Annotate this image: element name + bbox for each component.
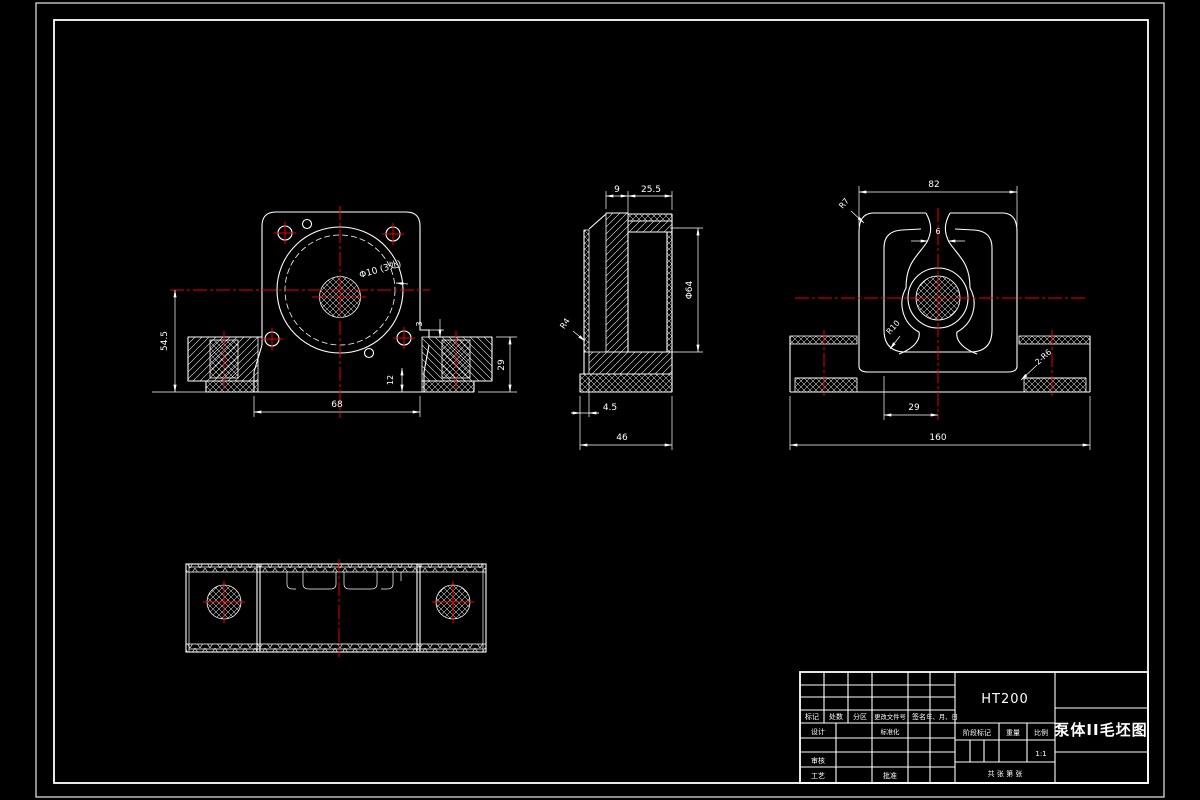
col-count: 处数 xyxy=(829,712,843,721)
drawing-canvas: 54.5 68 29 12 3 Φ10 (3处) 9 25.5 xyxy=(0,0,1200,800)
dim-base-width: 68 xyxy=(331,400,343,410)
col-change-file: 更改文件号 xyxy=(874,712,905,721)
label-standardization: 标准化 xyxy=(881,727,901,736)
dim-slab-height: 12 xyxy=(386,375,395,385)
side-section-view: 9 25.5 Φ64 R4 4.5 46 xyxy=(558,185,703,450)
cad-drawing-sheet: 54.5 68 29 12 3 Φ10 (3处) 9 25.5 xyxy=(0,0,1200,800)
label-approve: 批准 xyxy=(883,771,897,780)
label-check: 审核 xyxy=(811,756,825,765)
label-process: 工艺 xyxy=(811,772,825,780)
material-spec: HT200 xyxy=(981,692,1029,707)
col-mark: 标记 xyxy=(805,712,819,721)
dim-width: 46 xyxy=(616,433,628,443)
dim-leg-offset: 29 xyxy=(908,403,920,413)
dim-step: 3 xyxy=(415,321,424,326)
dim-base-width: 160 xyxy=(929,433,946,443)
dim-step: 4.5 xyxy=(603,403,617,413)
front-view: 54.5 68 29 12 3 Φ10 (3处) xyxy=(152,206,517,418)
dim-flange-thk: 9 xyxy=(614,185,620,195)
dim-center-to-base: 54.5 xyxy=(160,331,170,351)
sheet-info: 共 张 第 张 xyxy=(988,769,1023,778)
dim-body-width: 82 xyxy=(928,180,939,190)
label-design: 设计 xyxy=(811,727,825,736)
rib-contours xyxy=(287,572,401,589)
inner-border xyxy=(54,20,1148,783)
label-scale: 比例 xyxy=(1034,728,1048,737)
dim-slot-width: 6 xyxy=(935,227,940,236)
dim-foot-height: 29 xyxy=(497,359,507,371)
dim-web-fillet: R10 xyxy=(885,318,902,336)
bottom-view xyxy=(186,559,486,657)
dim-fillet: R4 xyxy=(558,317,571,331)
label-stage-mark: 阶段标记 xyxy=(963,728,991,737)
dim-bore-depth: 25.5 xyxy=(641,185,661,195)
dim-holes-callout: Φ10 (3处) xyxy=(358,257,403,280)
col-signature: 签名 xyxy=(912,712,926,721)
dim-bore-dia: Φ64 xyxy=(685,280,695,299)
end-section-view: 82 R7 6 R10 2-R6 29 160 xyxy=(790,180,1090,450)
dim-top-fillet: R7 xyxy=(837,196,851,210)
title-block: 标记 处数 分区 更改文件号 签名 年、月、日 设计 标准化 审核 工艺 批准 … xyxy=(800,672,1148,783)
drawing-title: 泵体II毛坯图 xyxy=(1054,721,1147,739)
col-zone: 分区 xyxy=(853,712,867,721)
label-weight: 重量 xyxy=(1006,729,1020,737)
col-date: 年、月、日 xyxy=(926,712,957,721)
scale-value: 1:1 xyxy=(1035,750,1046,758)
dim-pad-fillet: 2-R6 xyxy=(1033,348,1053,367)
outer-border xyxy=(36,3,1164,797)
